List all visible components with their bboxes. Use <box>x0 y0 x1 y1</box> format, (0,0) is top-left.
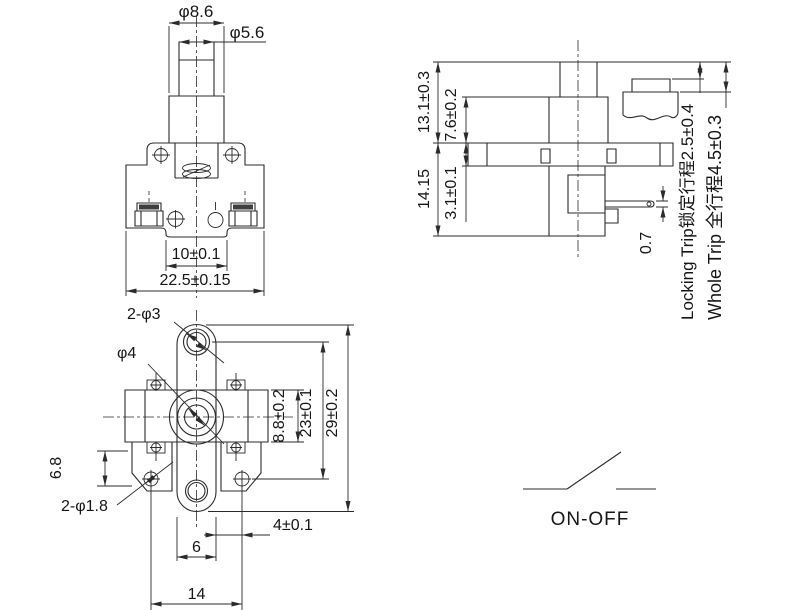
pressed-button-stub <box>632 79 670 92</box>
side-terminal-pin <box>605 201 654 207</box>
lug-hole-right <box>233 470 251 488</box>
dim-label-body-width: 22.5±0.15 <box>159 272 230 289</box>
dim-label-plate-thickness: 3.1±0.1 <box>443 166 460 219</box>
dim-label-ear-holes: 2-φ3 <box>127 306 161 323</box>
screw-bottom-right <box>227 442 245 461</box>
terminal-left <box>135 191 163 226</box>
label-whole-trip: Whole Trip 全行程4.5±0.3 <box>705 115 725 320</box>
circuit-label: ON-OFF <box>551 509 630 530</box>
label-locking-trip: Locking Trip锁定行程2.5±0.4 <box>678 104 697 320</box>
dim-label-upper-height: 13.1±0.3 <box>416 71 433 133</box>
dim-label-body-height-bv: 8.8±0.2 <box>271 389 288 442</box>
dim-label-pin-thickness: 0.7 <box>638 232 655 254</box>
switch-symbol <box>523 452 656 489</box>
side-shaft <box>560 62 597 97</box>
screw-bottom-left <box>147 442 165 461</box>
terminal-right <box>229 191 257 226</box>
dim-label-lower-height: 14.15 <box>416 169 433 209</box>
drawing-page: φ8.6 φ5.6 10±0.1 22.5±0.15 <box>0 0 788 610</box>
dim-label-pin-width: 6 <box>192 539 201 556</box>
dim-label-center-hole: φ4 <box>117 345 136 362</box>
dim-label-hole-span-v: 23±0.1 <box>298 388 315 437</box>
side-tab <box>605 209 618 223</box>
dim-label-lug-span: 14 <box>188 586 206 603</box>
leader-center-hole <box>148 364 224 444</box>
leader-small-holes <box>117 462 173 505</box>
circuit-symbol: ON-OFF <box>523 452 656 530</box>
dim-label-overall-height: 29±0.2 <box>324 388 341 437</box>
side-view: 13.1±0.3 14.15 7.6±0.2 3.1±0.1 0.7 Locki… <box>416 40 731 320</box>
side-plate <box>468 143 673 166</box>
dim-label-pin-offset: 4±0.1 <box>273 517 313 534</box>
bottom-ext-lines <box>97 325 354 610</box>
body-hole-plain <box>208 202 223 228</box>
switch-technical-drawing: φ8.6 φ5.6 10±0.1 22.5±0.15 <box>0 0 788 610</box>
front-view: φ8.6 φ5.6 10±0.1 22.5±0.15 <box>126 2 266 298</box>
side-clips <box>541 149 616 163</box>
bottom-view: 2-φ3 φ4 6.8 2-φ1.8 8.8±0.2 23±0.1 29±0.2… <box>48 306 354 610</box>
screw-top-right <box>227 373 245 391</box>
dim-label-slot-width: 10±0.1 <box>172 246 221 263</box>
front-body-outline <box>126 143 264 237</box>
dim-label-shaft-dia: φ5.6 <box>230 23 265 42</box>
dim-label-small-holes: 2-φ1.8 <box>61 498 108 515</box>
side-lower-body <box>549 166 605 236</box>
dim-label-lug-height: 6.8 <box>48 457 65 479</box>
pressed-button-break <box>623 92 678 120</box>
side-slot <box>568 175 605 213</box>
dim-label-cap-dia: φ8.6 <box>179 2 214 21</box>
side-upper-body <box>549 97 608 143</box>
screw-top-left <box>147 373 165 391</box>
ear-hole-right <box>223 146 241 164</box>
dim-label-body-height: 7.6±0.2 <box>443 88 460 141</box>
ear-hole-left <box>152 146 170 164</box>
body-hole-cross <box>166 210 185 229</box>
